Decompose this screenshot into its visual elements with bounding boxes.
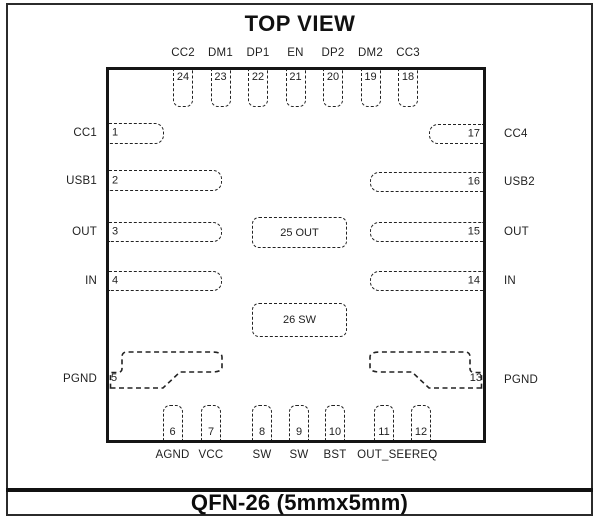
pin-12-number: 12 xyxy=(412,427,430,438)
pin-22-label: DP1 xyxy=(247,47,270,59)
pin-9-label: SW xyxy=(290,449,309,461)
pin-15-number: 15 xyxy=(468,227,480,238)
pinout-figure: QFN-26 (5mmx5mm) TOP VIEW 24CC223DM122DP… xyxy=(0,0,600,521)
pin-21-label: EN xyxy=(287,47,303,59)
pin-19: 19 xyxy=(361,70,381,107)
pin-8-number: 8 xyxy=(253,427,271,438)
pin-14-label: IN xyxy=(504,275,516,287)
pin-1: 1 xyxy=(109,123,164,144)
pin-21: 21 xyxy=(286,70,306,107)
pin-10-label: BST xyxy=(324,449,347,461)
pin-14-number: 14 xyxy=(468,276,480,287)
pin-17: 17 xyxy=(429,124,483,144)
pin-7-label: VCC xyxy=(199,449,224,461)
pin-12: 12 xyxy=(411,405,431,440)
pin-3-number: 3 xyxy=(112,227,118,238)
pin-17-label: CC4 xyxy=(504,128,528,140)
pin-15: 15 xyxy=(370,222,483,242)
pin-5-label: PGND xyxy=(63,373,97,385)
pin-7: 7 xyxy=(201,405,221,440)
pin-5-number: 5 xyxy=(111,373,117,384)
pin-22-number: 22 xyxy=(249,72,267,83)
pin-18: 18 xyxy=(398,70,418,107)
pin-8: 8 xyxy=(252,405,272,440)
pad-25: 25OUT xyxy=(252,217,347,248)
pin-10: 10 xyxy=(325,405,345,440)
pin-13-number: 13 xyxy=(470,373,482,384)
pin-24-number: 24 xyxy=(174,72,192,83)
pin-8-label: SW xyxy=(253,449,272,461)
pin-19-number: 19 xyxy=(362,72,380,83)
pin-16-number: 16 xyxy=(468,177,480,188)
pin-1-number: 1 xyxy=(112,128,118,139)
pin-15-label: OUT xyxy=(504,226,529,238)
pin-3-label: OUT xyxy=(72,226,97,238)
pin-9-number: 9 xyxy=(290,427,308,438)
pin-6: 6 xyxy=(163,405,183,440)
pin-11-number: 11 xyxy=(375,427,393,438)
pin-23-number: 23 xyxy=(212,72,230,83)
pin-10-number: 10 xyxy=(326,427,344,438)
pin-20-label: DP2 xyxy=(322,47,345,59)
pad-26: 26SW xyxy=(252,303,347,337)
pin-19-label: DM2 xyxy=(358,47,383,59)
pin-9: 9 xyxy=(289,405,309,440)
pin-24-label: CC2 xyxy=(171,47,195,59)
pin-18-label: CC3 xyxy=(396,47,420,59)
pad-26-number: 26 xyxy=(283,314,295,326)
pin-3: 3 xyxy=(109,222,222,242)
pin-16-label: USB2 xyxy=(504,176,535,188)
pin-1-label: CC1 xyxy=(73,127,97,139)
pad-25-number: 25 xyxy=(280,227,292,239)
pin-11-label: OUT_SEL xyxy=(357,449,411,461)
pin-20-number: 20 xyxy=(324,72,342,83)
pin-12-label: FREQ xyxy=(405,449,438,461)
pin-24: 24 xyxy=(173,70,193,107)
top-view-title: TOP VIEW xyxy=(0,11,600,37)
pin-6-number: 6 xyxy=(164,427,182,438)
package-label: QFN-26 (5mmx5mm) xyxy=(8,492,591,514)
pin-14: 14 xyxy=(370,271,483,291)
pin-4-number: 4 xyxy=(112,276,118,287)
pin-21-number: 21 xyxy=(287,72,305,83)
pin-16: 16 xyxy=(370,172,483,192)
pin-7-number: 7 xyxy=(202,427,220,438)
pin-4-label: IN xyxy=(85,275,97,287)
pad-25-label: OUT xyxy=(296,227,319,239)
pin-13-label: PGND xyxy=(504,374,538,386)
pin-2-number: 2 xyxy=(112,175,118,186)
pin-20: 20 xyxy=(323,70,343,107)
pin-17-number: 17 xyxy=(468,129,480,140)
chip-outline xyxy=(106,67,486,443)
pin-11: 11 xyxy=(374,405,394,440)
pin-18-number: 18 xyxy=(399,72,417,83)
pin-23-label: DM1 xyxy=(208,47,233,59)
pin-2: 2 xyxy=(109,170,222,191)
pad-26-label: SW xyxy=(298,314,316,326)
pin-4: 4 xyxy=(109,271,222,291)
pin-6-label: AGND xyxy=(155,449,189,461)
pin-2-label: USB1 xyxy=(66,175,97,187)
pin-22: 22 xyxy=(248,70,268,107)
pin-23: 23 xyxy=(211,70,231,107)
